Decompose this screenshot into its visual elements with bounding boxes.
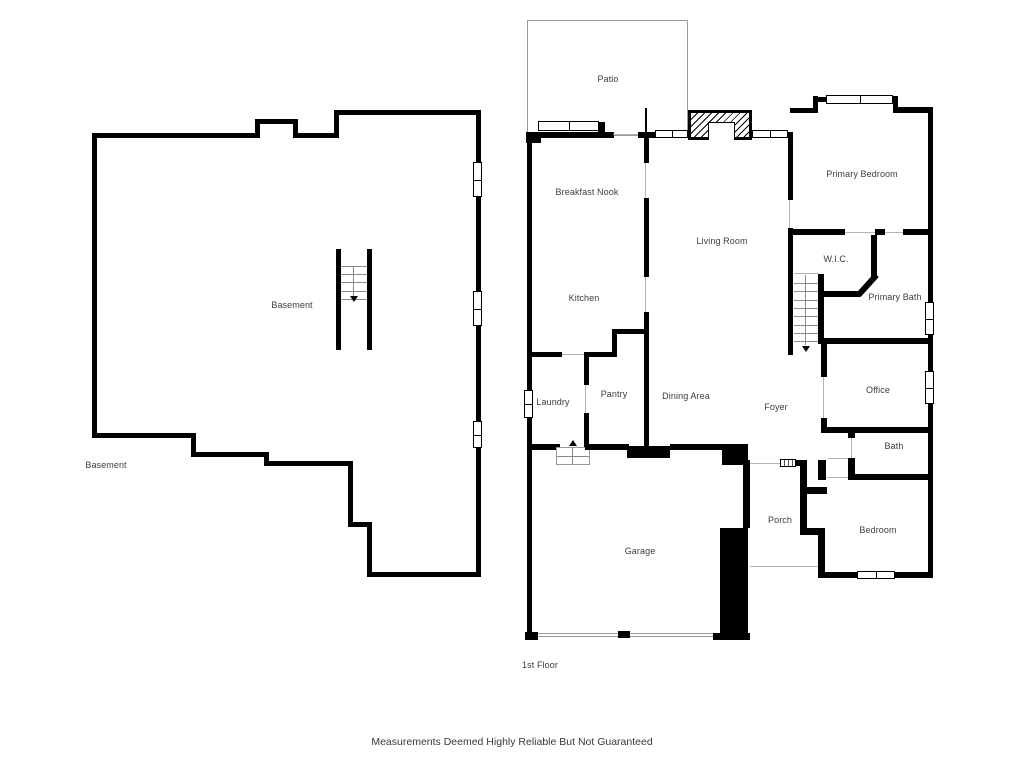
stairs-wall: [818, 274, 824, 344]
wall-segment: [367, 522, 372, 577]
room-label-office: Office: [866, 385, 890, 395]
stair-tread: [794, 308, 818, 309]
room-label-bath: Bath: [885, 441, 904, 451]
stair-tread: [794, 341, 818, 342]
opening-line: [823, 377, 824, 418]
wall-segment: [598, 122, 605, 138]
opening-line: [613, 134, 638, 135]
wall-segment: [848, 474, 930, 480]
wall-segment: [823, 338, 933, 344]
wall-segment: [893, 107, 933, 113]
floor-caption: 1st Floor: [522, 660, 558, 670]
stair-direction-line: [572, 448, 573, 464]
wall-segment: [788, 132, 793, 200]
window-symbol: [473, 162, 482, 197]
window-symbol: [857, 571, 895, 579]
stair-tread: [341, 266, 367, 267]
room-label-living-room: Living Room: [696, 236, 747, 246]
wall-segment: [92, 133, 97, 438]
wall-segment: [743, 460, 750, 528]
wall-segment: [92, 433, 196, 438]
wall-segment: [527, 132, 532, 633]
wall-segment: [823, 427, 930, 433]
wall-segment: [644, 198, 649, 277]
wall-segment: [531, 352, 562, 357]
opening-line: [645, 163, 646, 198]
wall-segment: [191, 452, 269, 457]
opening-line: [828, 458, 848, 459]
wall-segment: [788, 229, 845, 235]
window-symbol: [925, 371, 934, 404]
wall-segment: [818, 460, 826, 480]
room-label-porch: Porch: [768, 515, 792, 525]
stair-tread: [794, 300, 818, 301]
wall-segment: [585, 444, 629, 450]
stair-tread: [794, 325, 818, 326]
wall-segment: [670, 444, 722, 450]
stair-direction-arrow-icon: [802, 346, 810, 352]
room-label-bedroom: Bedroom: [859, 525, 896, 535]
floor-plan-canvas: Basement Basement Patio: [0, 0, 1024, 768]
window-symbol: [473, 421, 482, 448]
wall-segment: [367, 572, 481, 577]
room-label-wic: W.I.C.: [823, 254, 848, 264]
window-symbol: [925, 302, 934, 335]
patio-door-leaf: [645, 108, 647, 134]
wall-segment: [584, 413, 589, 447]
stairs-wall: [367, 249, 372, 350]
room-label-laundry: Laundry: [536, 397, 569, 407]
stair-tread: [794, 283, 818, 284]
wall-segment: [802, 528, 825, 535]
room-label-pantry: Pantry: [601, 389, 628, 399]
window-symbol: [524, 390, 533, 418]
room-label-dining-area: Dining Area: [662, 391, 710, 401]
fireplace-firebox: [708, 122, 735, 140]
opening-line: [562, 354, 584, 355]
room-label-basement: Basement: [271, 300, 312, 310]
wall-segment: [92, 133, 259, 138]
wall-segment: [871, 235, 877, 277]
stair-direction-arrow-icon: [569, 440, 577, 446]
wall-segment: [818, 528, 825, 578]
stair-direction-line: [805, 275, 806, 345]
window-symbol: [655, 130, 688, 138]
opening-line: [645, 277, 646, 312]
room-label-primary-bedroom: Primary Bedroom: [826, 169, 898, 179]
wall-segment: [525, 632, 538, 640]
stair-tread: [341, 291, 367, 292]
wall-segment: [348, 461, 353, 527]
opening-line: [827, 477, 848, 478]
wall-segment: [644, 133, 649, 163]
stair-tread: [794, 291, 818, 292]
opening-line: [789, 200, 790, 228]
opening-line: [845, 232, 875, 233]
room-label-patio: Patio: [597, 74, 618, 84]
opening-line: [748, 463, 781, 464]
wall-segment: [264, 461, 353, 466]
wall-segment: [800, 460, 807, 535]
opening-line: [885, 232, 903, 233]
stair-tread: [341, 274, 367, 275]
wall-block: [627, 446, 670, 458]
wall-block: [720, 528, 748, 638]
wall-segment: [584, 352, 589, 385]
room-label-kitchen: Kitchen: [569, 293, 600, 303]
wall-segment: [805, 487, 827, 494]
stair-tread: [557, 456, 589, 457]
disclaimer-text: Measurements Deemed Highly Reliable But …: [371, 736, 652, 748]
room-label-garage: Garage: [625, 546, 656, 556]
window-symbol: [826, 95, 893, 104]
room-label-foyer: Foyer: [764, 402, 788, 412]
wall-segment: [788, 228, 793, 355]
stair-tread: [794, 316, 818, 317]
stair-cut-line: [794, 273, 818, 274]
wall-segment: [713, 633, 750, 640]
room-label-basement-outer: Basement: [85, 460, 126, 470]
stair-direction-line: [353, 266, 354, 297]
stair-tread: [794, 333, 818, 334]
front-door-symbol: [780, 459, 796, 467]
window-symbol: [752, 130, 788, 138]
room-label-breakfast-nook: Breakfast Nook: [556, 187, 619, 197]
wall-segment: [821, 344, 827, 377]
room-label-primary-bath: Primary Bath: [868, 292, 921, 302]
opening-line: [585, 385, 586, 413]
wall-segment: [612, 329, 646, 334]
porch-edge-line: [750, 566, 818, 567]
wall-segment: [255, 119, 298, 124]
window-symbol: [473, 291, 482, 326]
wall-segment: [903, 229, 933, 235]
stair-direction-arrow-icon: [350, 296, 358, 302]
stair-tread: [341, 282, 367, 283]
window-symbol: [538, 121, 599, 131]
wall-segment: [823, 291, 860, 297]
garage-door-post: [618, 631, 630, 638]
opening-line: [851, 438, 852, 458]
wall-segment: [334, 110, 481, 115]
wall-segment: [293, 133, 339, 138]
